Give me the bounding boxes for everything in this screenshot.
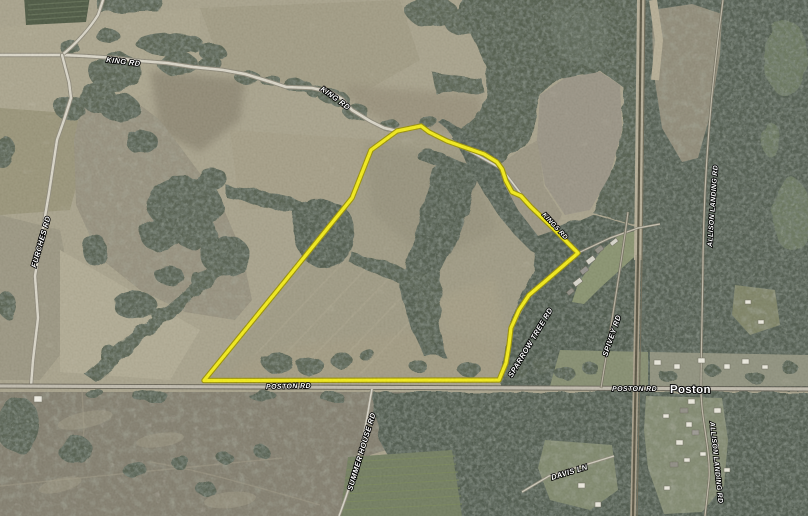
svg-text:Poston: Poston <box>670 384 711 396</box>
svg-text:POSTON RD: POSTON RD <box>266 383 311 391</box>
svg-text:POSTON RD: POSTON RD <box>612 386 657 393</box>
